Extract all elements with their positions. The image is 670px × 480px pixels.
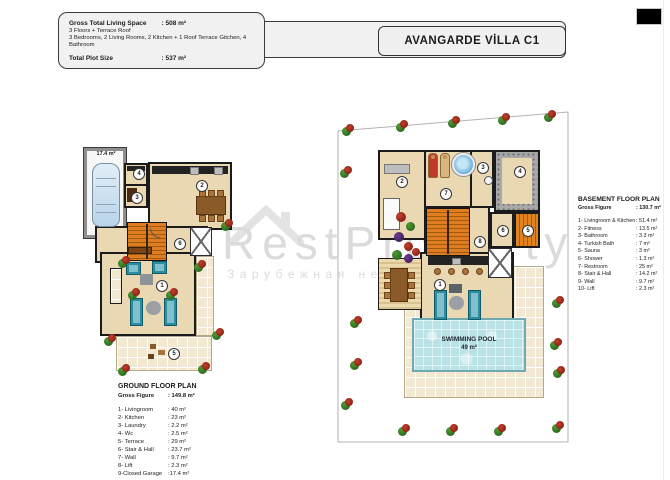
legend-name: 4- Turkish Bath bbox=[578, 241, 636, 249]
bush-icon bbox=[406, 222, 415, 231]
chair-icon bbox=[408, 282, 415, 289]
legend-row: 6- Stair & Hall: 23.7 m² bbox=[118, 446, 238, 454]
legend-row: 8- Lift: 2.3 m² bbox=[118, 462, 238, 470]
plot-size-value: : 537 m² bbox=[162, 55, 255, 63]
lounger-icon bbox=[428, 153, 438, 178]
plant-icon bbox=[494, 424, 506, 436]
legend-name: 1- Livingroom bbox=[118, 406, 168, 414]
plant-icon bbox=[552, 421, 564, 433]
sofa-icon bbox=[164, 298, 177, 326]
bar-stool-icon bbox=[462, 268, 469, 275]
ground-legend-title: GROUND FLOOR PLAN bbox=[118, 383, 238, 392]
legend-row: 7- Restroom: 25 m² bbox=[578, 264, 664, 272]
plant-icon bbox=[398, 424, 410, 436]
legend-name: 3- Bathroom bbox=[578, 233, 636, 241]
room-badge-restroom: 7 bbox=[440, 188, 452, 200]
dining-table bbox=[196, 196, 226, 215]
legend-value: : 40 m² bbox=[168, 406, 186, 414]
legend-name: 8- Lift bbox=[118, 462, 168, 470]
gross-total-row: Gross Total Living Space : 508 m² bbox=[69, 20, 254, 28]
plot-size-row: Total Plot Size : 537 m² bbox=[69, 55, 254, 63]
info-box: Gross Total Living Space : 508 m² 3 Floo… bbox=[58, 12, 265, 69]
legend-name: 2- Kitchen bbox=[118, 414, 168, 422]
stove-icon bbox=[190, 167, 199, 175]
legend-value: : 3 m² bbox=[636, 248, 650, 256]
plant-icon bbox=[448, 116, 460, 128]
plant-icon bbox=[553, 366, 565, 378]
chair-icon bbox=[217, 190, 224, 197]
legend-value: : 2.2 m² bbox=[168, 422, 188, 430]
side-table bbox=[140, 274, 153, 285]
porch-strip bbox=[128, 247, 152, 254]
legend-name: 4- Wc bbox=[118, 430, 168, 438]
legend-value: : 29 m² bbox=[168, 438, 186, 446]
sofa-icon bbox=[434, 290, 447, 320]
balcony bbox=[110, 268, 122, 304]
legend-name: 7- Restroom bbox=[578, 264, 636, 272]
terrace-furniture bbox=[150, 344, 156, 349]
legend-name: 6- Shower bbox=[578, 256, 636, 264]
chair-icon bbox=[408, 292, 415, 299]
legend-row: 4- Turkish Bath: 7 m² bbox=[578, 241, 664, 249]
legend-name: 9- Wall bbox=[578, 279, 636, 287]
legend-name: 7- Wall bbox=[118, 454, 168, 462]
ground-legend: GROUND FLOOR PLAN Gross Figure: 149.8 m²… bbox=[118, 383, 238, 478]
legend-name: 3- Laundry bbox=[118, 422, 168, 430]
legend-value: : 25 m² bbox=[636, 264, 653, 272]
plant-icon bbox=[350, 358, 362, 370]
plant-icon bbox=[342, 124, 354, 136]
basement-legend: BASEMENT FLOOR PLAN Gross Figure: 130.7 … bbox=[578, 196, 664, 294]
legend-name: 6- Stair & Hall bbox=[118, 446, 168, 454]
room-badge-kitchen: 2 bbox=[196, 180, 208, 192]
ground-gross-label: Gross Figure bbox=[118, 392, 168, 400]
legend-row: 6- Shower: 1.3 m² bbox=[578, 256, 664, 264]
chair-icon bbox=[384, 282, 391, 289]
chair-icon bbox=[199, 215, 206, 222]
sofa-icon bbox=[468, 290, 481, 320]
legend-value: : 2.3 m² bbox=[636, 286, 654, 294]
legend-row: 5- Terrace: 29 m² bbox=[118, 438, 238, 446]
gross-total-value: : 508 m² bbox=[162, 20, 255, 28]
legend-value: : 9.7 m² bbox=[168, 454, 188, 462]
legend-row: 4- Wc: 2.5 m² bbox=[118, 430, 238, 438]
room-badge-bathroom: 3 bbox=[477, 162, 489, 174]
legend-value: : 9.7 m² bbox=[636, 279, 654, 287]
bush-icon bbox=[392, 250, 402, 260]
legend-row: 2- Kitchen: 23 m² bbox=[118, 414, 238, 422]
room-badge-livingroom: 1 bbox=[156, 280, 168, 292]
plant-icon bbox=[128, 288, 140, 300]
legend-value: : 3.3 m² bbox=[636, 233, 654, 241]
legend-value: : 14.2 m² bbox=[636, 271, 657, 279]
bush-icon bbox=[396, 212, 406, 222]
room-badge-turkish-bath: 4 bbox=[514, 166, 526, 178]
legend-name: 2- Fitness bbox=[578, 226, 636, 234]
sink-icon bbox=[214, 167, 223, 175]
plant-icon bbox=[340, 166, 352, 178]
basement-gross-value: : 130.7 m² bbox=[636, 205, 661, 213]
room-badge-fitness: 2 bbox=[396, 176, 408, 188]
plant-icon bbox=[104, 334, 116, 346]
legend-row: 2- Fitness: 13.5 m² bbox=[578, 226, 664, 234]
bush-icon bbox=[412, 248, 420, 256]
legend-name: 5- Sauna bbox=[578, 248, 636, 256]
legend-row: 8- Stair & Hall: 14.2 m² bbox=[578, 271, 664, 279]
toilet-icon bbox=[484, 176, 493, 185]
legend-row: 7- Wall: 9.7 m² bbox=[118, 454, 238, 462]
legend-row: 3- Bathroom: 3.3 m² bbox=[578, 233, 664, 241]
pool-title: SWIMMING POOL bbox=[420, 336, 518, 344]
floors-line: 3 Floors + Terrace Roof bbox=[69, 28, 254, 35]
stairs-rail bbox=[447, 210, 449, 254]
legend-value: : 2.5 m² bbox=[168, 430, 188, 438]
barbell-rack-icon bbox=[384, 164, 410, 174]
turkish-bath-floor bbox=[502, 158, 532, 204]
rooms-line: 3 Bedrooms, 2 Living Rooms, 2 Kitchen + … bbox=[69, 35, 254, 49]
villa-title: AVANGARDE VİLLA C1 bbox=[378, 26, 566, 56]
plant-icon bbox=[552, 296, 564, 308]
plant-icon bbox=[194, 260, 206, 272]
legend-value: : 2.3 m² bbox=[168, 462, 188, 470]
plot-size-label: Total Plot Size bbox=[69, 55, 162, 63]
legend-value: : 23.7 m² bbox=[168, 446, 191, 454]
legend-row: 9- Wall: 9.7 m² bbox=[578, 279, 664, 287]
plant-icon bbox=[166, 288, 178, 300]
legend-name: 10- Lift bbox=[578, 286, 636, 294]
pool-area-label: 49 m² bbox=[420, 345, 518, 351]
stove-icon bbox=[452, 258, 461, 265]
lift-shaft-basement bbox=[488, 248, 512, 278]
plant-icon bbox=[198, 362, 210, 374]
legend-value: : 51.4 m² bbox=[636, 218, 657, 226]
plant-icon bbox=[446, 424, 458, 436]
plant-icon bbox=[550, 338, 562, 350]
legend-value: : 7 m² bbox=[636, 241, 650, 249]
jacuzzi-icon bbox=[452, 153, 475, 176]
lounger-icon bbox=[440, 153, 450, 178]
plant-icon bbox=[498, 113, 510, 125]
outdoor-dining-table bbox=[390, 268, 408, 302]
plant-icon bbox=[221, 219, 233, 231]
round-rug bbox=[146, 301, 161, 315]
plant-icon bbox=[350, 316, 362, 328]
legend-name: 8- Stair & Hall bbox=[578, 271, 636, 279]
armchair-icon bbox=[152, 261, 167, 274]
terrace-furniture bbox=[148, 354, 154, 359]
chair-icon bbox=[408, 272, 415, 279]
garage-area-label: 17.4 m² bbox=[88, 151, 124, 157]
room-badge-terrace: 5 bbox=[168, 348, 180, 360]
bar-stool-icon bbox=[448, 268, 455, 275]
chair-icon bbox=[384, 272, 391, 279]
ground-gross-value: : 149.8 m² bbox=[168, 392, 195, 400]
legend-name: 1- Livingroom & Kitchen bbox=[578, 218, 636, 226]
bar-stool-icon bbox=[476, 268, 483, 275]
legend-row: 3- Laundry: 2.2 m² bbox=[118, 422, 238, 430]
basement-legend-title: BASEMENT FLOOR PLAN bbox=[578, 196, 664, 205]
room-badge-shower: 6 bbox=[497, 225, 509, 237]
room-badge-stair-hall: 8 bbox=[474, 236, 486, 248]
legend-row: 1- Livingroom & Kitchen: 51.4 m² bbox=[578, 218, 664, 226]
room-badge-wc: 4 bbox=[133, 168, 145, 180]
car-icon bbox=[92, 163, 120, 227]
chair-icon bbox=[208, 215, 215, 222]
gross-total-label: Gross Total Living Space bbox=[69, 20, 162, 28]
tv-unit bbox=[449, 284, 462, 293]
legend-value: : 13.5 m² bbox=[636, 226, 657, 234]
plant-icon bbox=[396, 120, 408, 132]
basement-gross-label: Gross Figure bbox=[578, 205, 636, 213]
bush-icon bbox=[394, 232, 404, 242]
legend-row: 10- Lift: 2.3 m² bbox=[578, 286, 664, 294]
round-rug bbox=[449, 296, 464, 310]
room-badge-living-kitchen: 1 bbox=[434, 279, 446, 291]
terrace-furniture bbox=[158, 350, 165, 355]
floorplan-sheet: Gross Total Living Space : 508 m² 3 Floo… bbox=[0, 0, 670, 480]
sofa-icon bbox=[130, 298, 143, 326]
legend-value: : 23 m² bbox=[168, 414, 186, 422]
legend-name: 9-Closed Garage bbox=[118, 470, 168, 478]
stairs-rail bbox=[146, 224, 148, 259]
legend-row: 5- Sauna: 3 m² bbox=[578, 248, 664, 256]
bar-stool-icon bbox=[434, 268, 441, 275]
plant-icon bbox=[118, 256, 130, 268]
room-badge-sauna: 5 bbox=[522, 225, 534, 237]
room-badge-laundry: 3 bbox=[131, 192, 143, 204]
room-badge-hall: 6 bbox=[174, 238, 186, 250]
lift-shaft-ground bbox=[190, 227, 212, 256]
legend-value: : 1.3 m² bbox=[636, 256, 654, 264]
chair-icon bbox=[208, 190, 215, 197]
plant-icon bbox=[341, 398, 353, 410]
plant-icon bbox=[544, 110, 556, 122]
plant-icon bbox=[118, 364, 130, 376]
black-marker bbox=[636, 8, 662, 25]
bush-icon bbox=[404, 254, 413, 263]
legend-row: 9-Closed Garage:17.4 m² bbox=[118, 470, 238, 478]
legend-row: 1- Livingroom: 40 m² bbox=[118, 406, 238, 414]
legend-value: :17.4 m² bbox=[168, 470, 189, 478]
plant-icon bbox=[212, 328, 224, 340]
legend-name: 5- Terrace bbox=[118, 438, 168, 446]
chair-icon bbox=[384, 292, 391, 299]
